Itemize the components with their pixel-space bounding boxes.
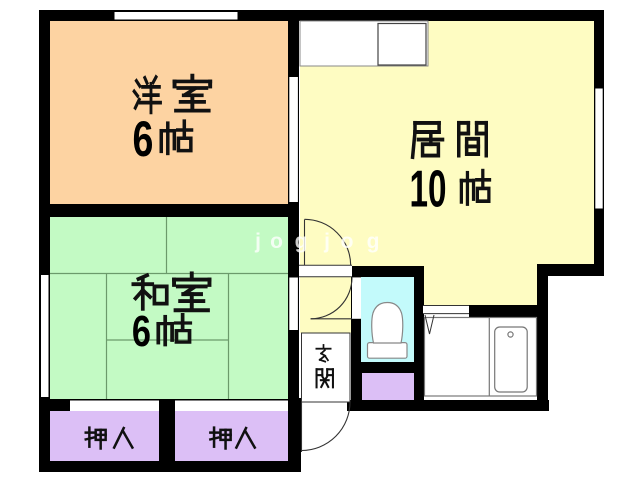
svg-text:6: 6 [132, 307, 151, 356]
svg-text:g: g [295, 230, 308, 253]
svg-text:10: 10 [410, 160, 447, 218]
svg-text:j: j [254, 230, 261, 253]
svg-text:o: o [270, 230, 283, 253]
svg-text:6: 6 [133, 112, 154, 167]
svg-text:j: j [323, 230, 330, 253]
svg-text:o: o [341, 230, 354, 253]
svg-text:g: g [367, 230, 380, 253]
